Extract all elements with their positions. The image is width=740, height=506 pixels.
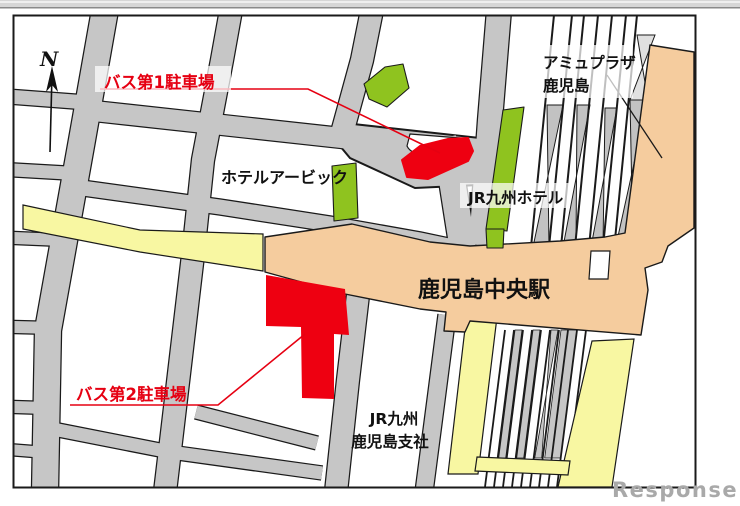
station-area-map: N バス第1駐車場 バス第2駐車場 ホテルアービック JR九州ホテル アミュプラ… <box>0 0 740 506</box>
jr-kyushu-hotel-annex <box>486 229 504 248</box>
response-watermark: Response. <box>612 478 740 502</box>
parking2-label: バス第2駐車場 <box>76 384 187 404</box>
station-label: 鹿児島中央駅 <box>418 277 550 303</box>
amu-plaza-label-line1: アミュプラザ <box>543 53 636 72</box>
parking1-label: バス第1駐車場 <box>104 72 215 92</box>
window-top-edge <box>0 0 740 9</box>
jr-branch-label-line2: 鹿児島支社 <box>351 432 429 451</box>
north-label: N <box>39 47 59 71</box>
hotel-urbic-label: ホテルアービック <box>221 168 348 187</box>
map-screenshot: N バス第1駐車場 バス第2駐車場 ホテルアービック JR九州ホテル アミュプラ… <box>0 0 740 506</box>
amu-plaza-label-line2: 鹿児島 <box>543 76 590 95</box>
jr-branch-label-line1: JR九州 <box>369 410 419 428</box>
station-notch <box>589 251 610 279</box>
jr-kyushu-hotel-label: JR九州ホテル <box>467 189 564 207</box>
